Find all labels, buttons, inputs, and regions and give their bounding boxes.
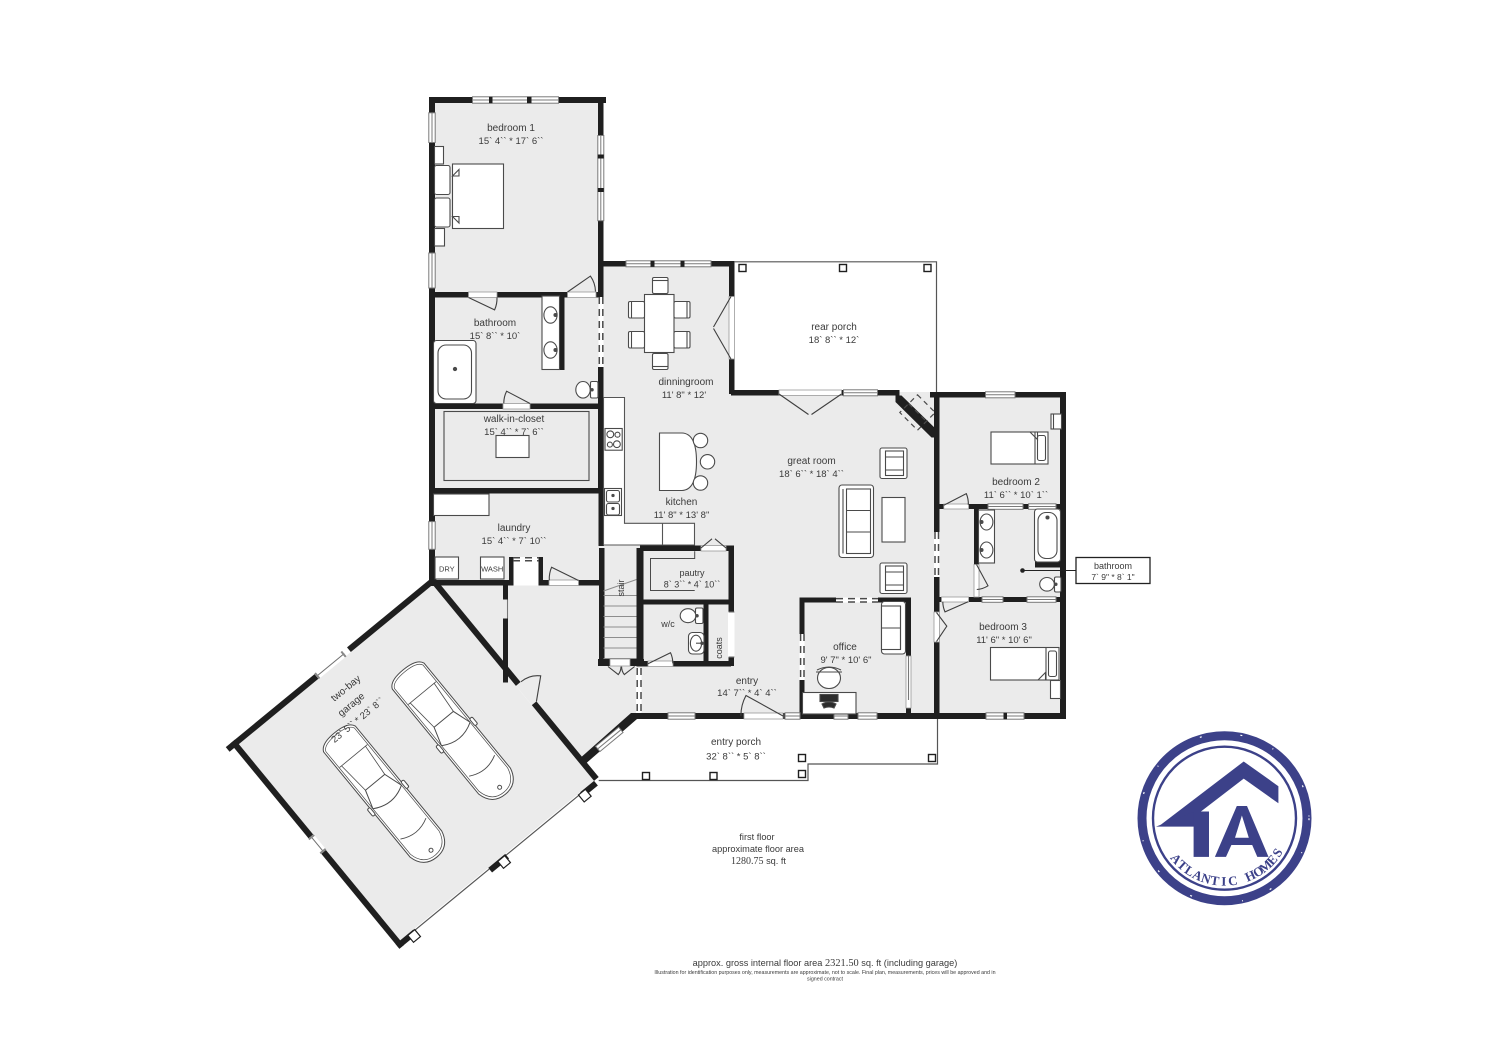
svg-text:32` 8`` * 5` 8``: 32` 8`` * 5` 8`` (706, 752, 766, 763)
svg-text:T: T (1209, 872, 1220, 888)
svg-text:bathroom: bathroom (1094, 561, 1132, 571)
svg-text:bathroom: bathroom (474, 318, 516, 329)
svg-text:15` 4`` * 7` 6``: 15` 4`` * 7` 6`` (484, 427, 544, 438)
svg-text:dinningroom: dinningroom (658, 377, 713, 388)
svg-text:walk-in-closet: walk-in-closet (483, 414, 545, 425)
svg-text:8` 3`` * 4` 10``: 8` 3`` * 4` 10`` (664, 580, 721, 590)
svg-text:entry porch: entry porch (711, 737, 761, 748)
svg-text:14` 7`` * 4` 4``: 14` 7`` * 4` 4`` (717, 688, 777, 699)
svg-text:1280.75 sq. ft: 1280.75 sq. ft (731, 856, 786, 867)
svg-text:first floor: first floor (739, 832, 774, 842)
svg-text:C: C (1227, 873, 1238, 889)
svg-text:pautry: pautry (679, 568, 705, 578)
svg-text:15` 4`` * 7` 10``: 15` 4`` * 7` 10`` (482, 536, 547, 547)
svg-text:11` 6`` * 10` 1``: 11` 6`` * 10` 1`` (984, 490, 1048, 501)
svg-text:Illustration for identificatio: Illustration for identification purposes… (654, 970, 995, 976)
svg-text:DRY: DRY (439, 565, 455, 574)
svg-text:18` 6`` * 18` 4``: 18` 6`` * 18` 4`` (779, 469, 844, 480)
svg-text:11' 8" * 13' 8": 11' 8" * 13' 8" (654, 510, 710, 521)
svg-text:office: office (833, 642, 857, 653)
svg-text:kitchen: kitchen (666, 497, 698, 508)
svg-text:7` 9" * 8` 1": 7` 9" * 8` 1" (1091, 572, 1134, 582)
svg-text:stair: stair (616, 579, 626, 596)
svg-text:15` 4`` * 17` 6``: 15` 4`` * 17` 6`` (479, 136, 544, 147)
svg-text:approx. gross internal floor a: approx. gross internal floor area 2321.5… (693, 958, 958, 969)
svg-text:approximate floor area: approximate floor area (712, 844, 805, 854)
svg-text:11' 8" * 12': 11' 8" * 12' (662, 390, 707, 401)
svg-text:coats: coats (714, 637, 724, 659)
svg-text:entry: entry (736, 676, 758, 687)
svg-text:bedroom 3: bedroom 3 (979, 622, 1027, 633)
svg-text:rear porch: rear porch (811, 322, 857, 333)
svg-text:11' 6" * 10' 6": 11' 6" * 10' 6" (976, 635, 1032, 646)
svg-text:9' 7" * 10' 6": 9' 7" * 10' 6" (820, 655, 871, 666)
svg-text:I: I (1221, 874, 1226, 889)
svg-text:signed contract: signed contract (807, 977, 843, 983)
svg-text:laundry: laundry (498, 523, 531, 534)
svg-text:18` 8`` * 12`: 18` 8`` * 12` (809, 335, 860, 346)
svg-text:bedroom 2: bedroom 2 (992, 477, 1040, 488)
svg-text:great room: great room (787, 456, 835, 467)
svg-text:w/c: w/c (660, 619, 675, 629)
svg-text:bedroom 1: bedroom 1 (487, 123, 535, 134)
svg-text:WASH: WASH (481, 565, 503, 574)
svg-text:15` 8`` * 10`: 15` 8`` * 10` (470, 331, 521, 342)
